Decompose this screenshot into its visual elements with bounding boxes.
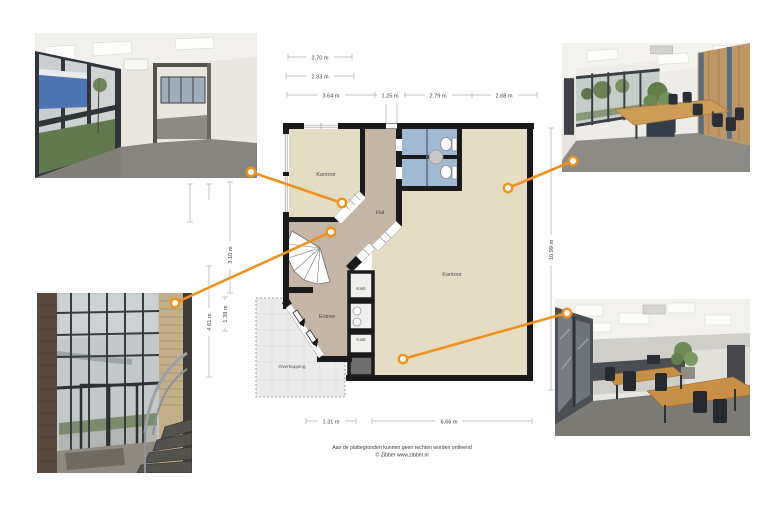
photo-entrance [37,293,192,473]
connector-line [403,313,567,359]
photo-connectors [171,157,577,363]
connector-ring [504,184,512,192]
dimensions-right: 10.99 m [547,128,555,390]
connector-ring [327,228,335,236]
room-label-kast-bottom: Kast [356,337,366,342]
svg-text:2.79 m: 2.79 m [429,94,446,100]
svg-text:1.25 m: 1.25 m [381,94,398,100]
svg-text:2.68 m: 2.68 m [495,94,512,100]
room-label-kantoor-right: Kantoor [442,272,462,278]
svg-text:2.70 m: 2.70 m [311,56,328,62]
photo-office-room [35,33,257,178]
connector-line [175,232,331,303]
svg-text:6.66 m: 6.66 m [440,420,457,426]
dimensions-top: 2.70 m 2.83 m 3.64 m 1.25 m 2.79 m 2.68 … [286,53,537,100]
dimensions-left: 3.10 m 1.39 m 4.61 m [187,182,234,377]
door-hal [346,221,402,272]
toilet-fixture [441,138,452,151]
svg-text:1.31 m: 1.31 m [322,420,339,426]
walls [282,104,534,381]
room-label-entree: Entree [319,314,335,320]
photo-office-desks [555,299,750,436]
door [564,78,574,135]
wood-panel-wall [698,43,750,146]
photo-conference-room [562,43,750,172]
technical-space [349,356,373,376]
monitor [647,355,660,364]
spiral-staircase [287,231,330,284]
ceiling-vent [643,305,665,314]
sink [429,150,443,164]
window [304,123,338,129]
blue-building [39,75,87,109]
svg-text:3.64 m: 3.64 m [322,94,339,100]
overkapping-area [256,298,345,397]
room-label-kast-top: Kast [356,286,366,291]
connector-ring [399,355,407,363]
entrance-double-doors [282,299,324,358]
toilets [402,129,458,187]
room-kantoor-right [350,126,532,378]
credit-text: © Zibber www.zibber.nl [375,452,428,459]
photo-conference-room-art [562,43,750,172]
room-label-overkapping: Overkapping [278,364,306,370]
svg-text:1.39 m: 1.39 m [223,305,229,322]
room-label-hal: Hal [376,210,384,216]
doorway [153,63,211,143]
toilet-fixture [441,166,452,179]
dark-brick-wall [37,293,57,473]
window [283,134,289,212]
footer: Aan de plattegronden kunnen geen rechten… [332,445,472,459]
disclaimer-text: Aan de plattegronden kunnen geen rechten… [332,445,472,451]
svg-text:10.99 m: 10.99 m [549,240,555,261]
connector-ring [338,199,346,207]
room-label-kantoor-left: Kantoor [316,172,336,178]
ceiling-vent [650,46,672,54]
photo-office-room-art [35,33,257,178]
hall-entree-floor [287,126,399,357]
dimensions-bottom: 1.31 m 6.66 m [306,417,532,426]
svg-text:4.61 m: 4.61 m [207,313,213,330]
door-kantoor-left [334,191,366,224]
room-kantoor-left [286,126,363,221]
svg-text:2.83 m: 2.83 m [311,75,328,81]
photo-office-desks-art [555,299,750,436]
connector-line [251,172,342,203]
floorplan-page: Kantoor Hal Kantoor Entree Kast Kast Ove… [0,0,768,512]
closets [349,272,373,376]
ac-unit [124,59,148,70]
rear-door [386,104,397,129]
svg-text:3.10 m: 3.10 m [228,246,234,263]
toilet-floor [402,129,458,187]
photo-entrance-art [37,293,192,473]
